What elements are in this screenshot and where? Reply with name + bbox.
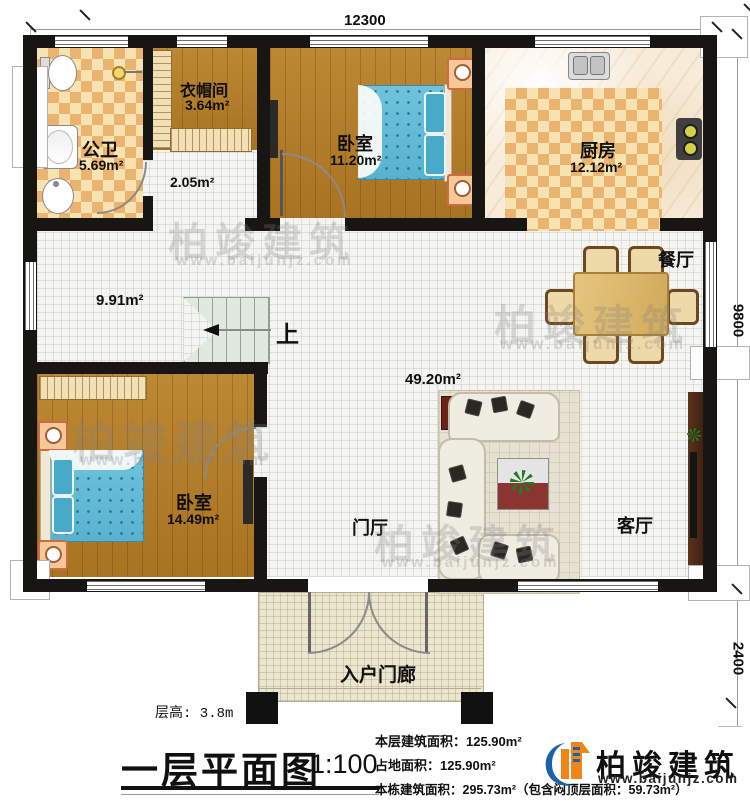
nightstand-icon: [38, 421, 68, 451]
dimension-tick: [725, 697, 736, 708]
label-kitchen-area: 12.12m²: [570, 159, 622, 175]
dimension-marker: [690, 346, 750, 380]
dimension-top-value: 12300: [344, 12, 386, 29]
brand-site: www.baijunjz.com: [598, 771, 739, 786]
wall-bedroom2-right: [254, 477, 267, 579]
towel-bar-icon: [124, 71, 142, 73]
title-underline: [121, 786, 379, 790]
extension-line: [718, 726, 742, 727]
dimension-tick: [79, 9, 90, 20]
pillow-icon: [424, 92, 446, 134]
dining-table-icon: [573, 272, 669, 336]
pillow-icon: [52, 496, 74, 534]
label-cloakroom-area: 3.64m²: [185, 97, 229, 113]
wall-interior-a: [37, 218, 153, 231]
window: [87, 581, 205, 591]
label-bedroom2-area: 14.49m²: [167, 511, 219, 527]
dimension-right-value: 9800: [730, 291, 747, 351]
window: [535, 36, 650, 47]
shower-basin-icon: [45, 130, 73, 164]
wall-stairs: [23, 362, 268, 374]
wall-bathroom-right: [143, 48, 153, 160]
floor-plan: 12300 9800 2400: [0, 0, 750, 804]
dimension-line-top: [30, 29, 718, 30]
label-bathroom-area: 5.69m²: [79, 157, 123, 173]
sink-tap-icon: [53, 181, 59, 187]
label-foyer-name: 门厅: [352, 514, 388, 540]
label-stairhall-area: 9.91m²: [96, 292, 144, 309]
lamp-icon: [45, 427, 62, 444]
porch-pillar: [246, 692, 278, 724]
window: [177, 36, 227, 47]
towel-hook-icon: [112, 66, 126, 80]
window: [705, 242, 716, 347]
label-living-name: 客厅: [617, 512, 653, 538]
lamp-icon: [454, 180, 471, 197]
dimension-porch-value: 2400: [730, 629, 747, 689]
chair-icon: [667, 289, 699, 325]
bed-headboard: [40, 450, 51, 542]
tv-icon: [690, 452, 697, 538]
wardrobe-icon: [170, 128, 252, 152]
label-stairs-up: 上: [276, 315, 299, 349]
kitchen-sink-basin: [573, 56, 588, 75]
stat-land-area: 占地面积：125.90m²: [375, 755, 496, 774]
wall-kitchen-bottom: [660, 218, 703, 231]
plan-scale: 1:100: [310, 749, 378, 780]
label-bedroom1-area: 11.20m²: [330, 152, 381, 168]
wardrobe-icon: [39, 376, 147, 400]
label-porch-name: 入户门廊: [340, 660, 416, 687]
burner-icon: [683, 124, 698, 139]
wall-bedroom1-right: [472, 48, 485, 231]
kitchen-sink-basin: [590, 56, 605, 75]
porch-step-line: [259, 688, 481, 689]
label-hallway-area: 2.05m²: [170, 174, 214, 190]
chair-icon: [583, 332, 619, 364]
plant-icon: [510, 470, 534, 494]
wall-interior-a: [345, 218, 472, 231]
sofa-pillow-icon: [491, 396, 508, 413]
dimension-tick: [25, 21, 36, 32]
wall-kitchen-bottom: [485, 218, 527, 231]
window: [310, 36, 428, 47]
wall-bedroom1-left: [257, 48, 270, 231]
brand-logo-icon: [540, 736, 594, 792]
porch-pillar: [461, 692, 493, 724]
entry-opening: [308, 579, 428, 592]
pillow-icon: [52, 458, 74, 496]
stat-floor-area: 本层建筑面积：125.90m²: [375, 731, 522, 750]
window: [25, 262, 36, 330]
kitchen-threshold: [527, 218, 660, 231]
title-underline-thin: [121, 794, 379, 795]
sofa-pillow-icon: [446, 501, 463, 518]
lamp-icon: [454, 64, 471, 81]
wall-bedroom2-right: [254, 374, 267, 427]
sofa-pillow-icon: [516, 546, 534, 564]
wardrobe-icon: [150, 50, 172, 149]
chair-icon: [628, 332, 664, 364]
toilet-bowl-icon: [48, 55, 77, 91]
label-living-open-area: 49.20m²: [405, 371, 461, 388]
floor-height-label: 层高: 3.8m: [155, 702, 233, 722]
window: [518, 581, 658, 591]
plant-icon: [687, 428, 701, 442]
burner-icon: [683, 141, 698, 156]
label-dining-name: 餐厅: [658, 246, 694, 272]
window: [55, 36, 128, 47]
pillow-icon: [424, 134, 446, 176]
wall-interior-a: [245, 218, 280, 231]
dimension-tick: [743, 3, 750, 14]
